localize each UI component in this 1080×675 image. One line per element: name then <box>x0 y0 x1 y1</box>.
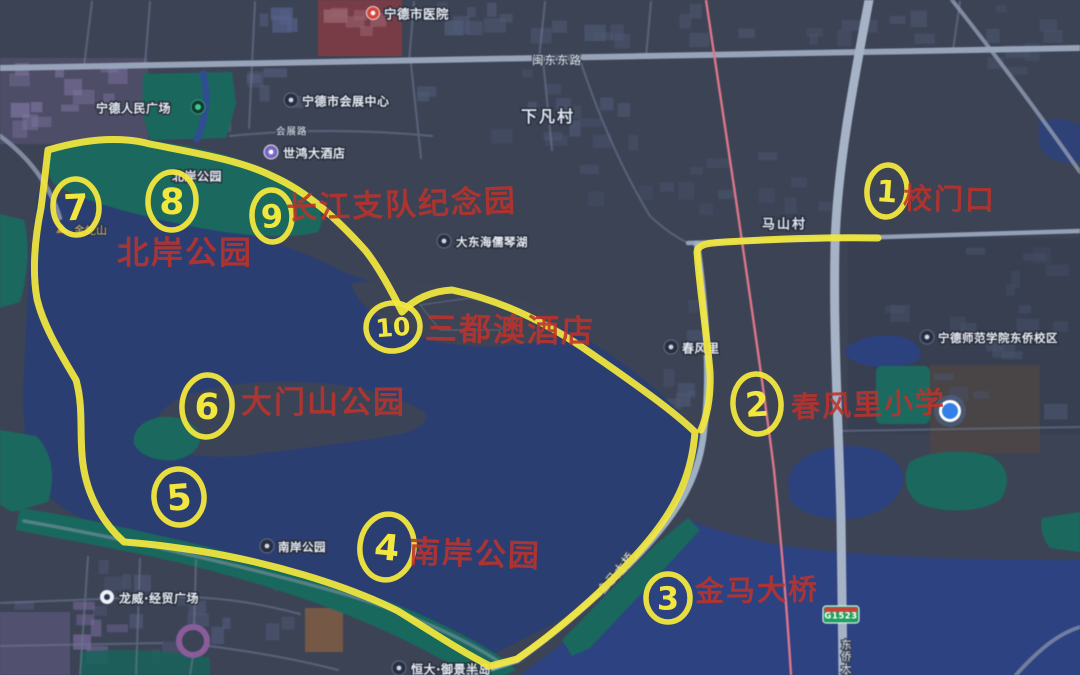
map-screenshot: 宁德市医院宁德人民广场宁德市会展中心世鸿大酒店下凡村北岸公园金蛇山大东海儒琴湖马… <box>0 0 1080 675</box>
annotation-overlay: 12345678910 校门口长江支队纪念园北岸公园三都澳酒店大门山公园南岸公园… <box>0 0 1080 675</box>
annotation-circle-10: 10 <box>364 300 423 353</box>
annotation-circle-3: 3 <box>646 574 690 622</box>
annotation-number-10: 10 <box>375 312 412 343</box>
annotation-number-7: 7 <box>63 187 90 229</box>
annotation-circle-7: 7 <box>51 177 101 236</box>
red-label-layer: 校门口长江支队纪念园北岸公园三都澳酒店大门山公园南岸公园金马大桥春风里小学 <box>117 181 996 608</box>
annotation-number-6: 6 <box>193 386 221 428</box>
annotation-number-5: 5 <box>165 477 193 520</box>
annotation-number-8: 8 <box>159 182 186 224</box>
annotation-text-school-gate: 校门口 <box>903 181 997 217</box>
annotation-text-jinma-bridge: 金马大桥 <box>694 572 820 608</box>
annotation-number-3: 3 <box>657 580 679 618</box>
annotation-number-4: 4 <box>372 527 401 570</box>
annotation-text-sanduao-hotel: 三都澳酒店 <box>425 310 596 351</box>
annotation-text-changjiang-memorial: 长江支队纪念园 <box>285 183 517 227</box>
annotation-text-chunfengli-school: 春风里小学 <box>790 385 946 424</box>
annotation-number-2: 2 <box>744 385 770 426</box>
annotation-circle-5: 5 <box>151 467 207 528</box>
annotation-text-beian-park: 北岸公园 <box>117 234 253 272</box>
annotation-circle-6: 6 <box>179 373 234 439</box>
annotation-number-9: 9 <box>260 197 284 236</box>
annotation-text-nanan-park: 南岸公园 <box>408 534 541 575</box>
annotation-number-1: 1 <box>875 174 898 210</box>
annotation-circle-2: 2 <box>730 372 783 436</box>
annotation-circle-8: 8 <box>147 171 198 231</box>
annotation-text-damenshan-park: 大门山公园 <box>241 385 406 421</box>
